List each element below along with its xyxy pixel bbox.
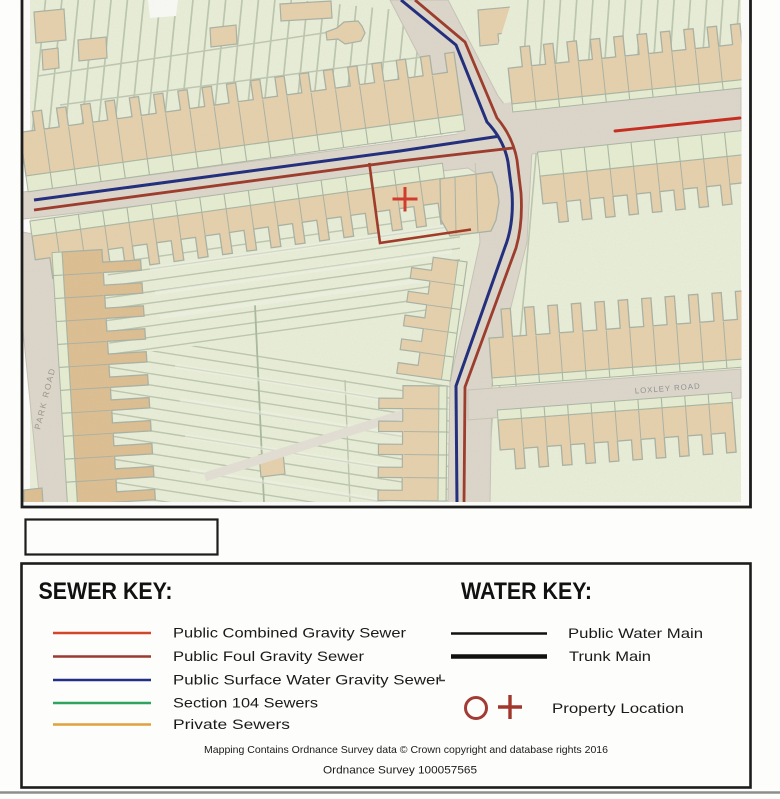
svg-text:Ordnance Survey 100057565: Ordnance Survey 100057565 — [323, 765, 477, 777]
svg-text:WATER KEY:: WATER KEY: — [461, 578, 592, 605]
svg-text:Public Surface Water Gravity S: Public Surface Water Gravity Sewer — [173, 672, 441, 688]
svg-text:Public Foul Gravity Sewer: Public Foul Gravity Sewer — [173, 648, 364, 664]
svg-text:Public Combined Gravity Sewer: Public Combined Gravity Sewer — [173, 625, 406, 641]
svg-text:Mapping Contains Ordnance Surv: Mapping Contains Ordnance Survey data © … — [204, 744, 608, 756]
svg-text:Section 104 Sewers: Section 104 Sewers — [173, 695, 318, 711]
svg-text:Public Water Main: Public Water Main — [568, 625, 703, 641]
svg-text:Private Sewers: Private Sewers — [173, 716, 290, 732]
svg-text:Property Location: Property Location — [552, 700, 684, 716]
svg-text:Trunk Main: Trunk Main — [569, 648, 651, 664]
svg-text:SEWER KEY:: SEWER KEY: — [39, 578, 173, 605]
